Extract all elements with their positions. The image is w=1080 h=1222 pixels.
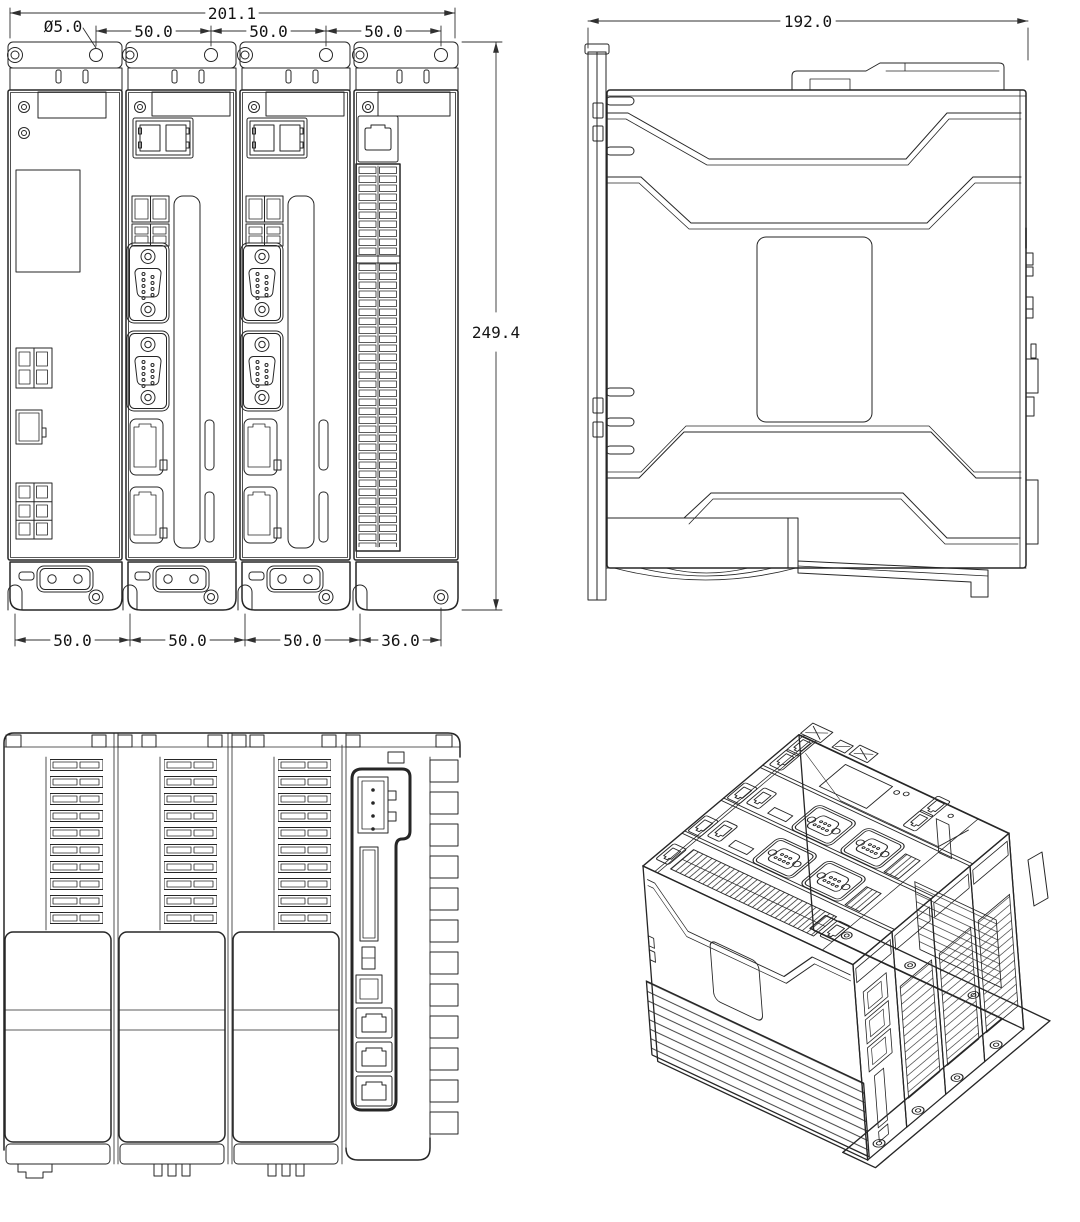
dim-side-depth: 192.0 (784, 12, 832, 31)
dim-bottom-pitch-a: 50.0 (53, 631, 92, 650)
dim-top-pitch-c: 50.0 (364, 22, 403, 41)
io-terminal-strip (356, 164, 400, 551)
dim-bottom-last: 36.0 (381, 631, 420, 650)
multi-view-engineering-drawing: 201.1 Ø5.0 50.0 50.0 50.0 249.4 50.0 50.… (0, 0, 1080, 1222)
dim-bottom-pitch-c: 50.0 (283, 631, 322, 650)
bottom-vent-slats (46, 757, 331, 930)
technical-drawing-sheet: 201.1 Ø5.0 50.0 50.0 50.0 249.4 50.0 50.… (0, 0, 1080, 1222)
dim-height-overall: 249.4 (472, 323, 520, 342)
dim-bottom-pitch-b: 50.0 (168, 631, 207, 650)
dim-top-pitch-a: 50.0 (134, 22, 173, 41)
dim-top-pitch-b: 50.0 (249, 22, 288, 41)
dim-top-overall: 201.1 (208, 4, 256, 23)
dim-hole-diameter: Ø5.0 (44, 17, 83, 36)
